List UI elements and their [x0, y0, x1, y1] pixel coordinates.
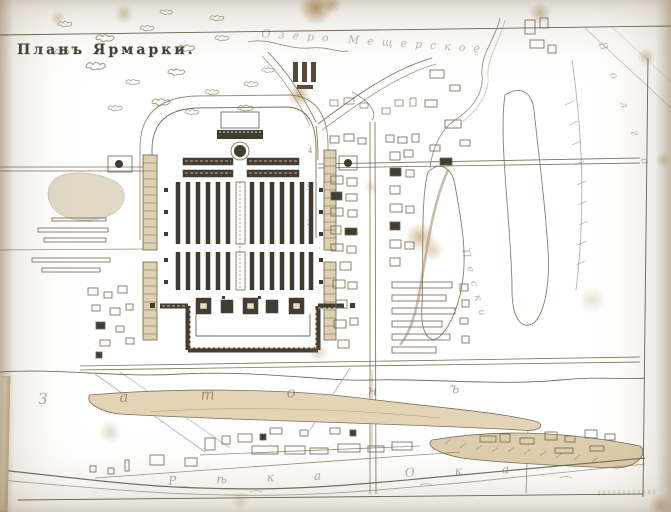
arcade-strips	[143, 150, 336, 340]
map-engraving	[0, 0, 671, 512]
vegetation-tufts	[55, 10, 275, 115]
backwater-and-river	[0, 371, 645, 495]
map-sheet: Планъ Ярмарки. Озеро Мещерское Затонъ Рѣ…	[0, 0, 671, 512]
fair-ensemble	[140, 95, 355, 350]
west-district	[32, 156, 134, 358]
trading-rows	[178, 182, 311, 290]
engraver-signature	[598, 489, 656, 495]
ornate-rows	[183, 158, 299, 177]
triple-building	[293, 62, 316, 89]
central-gallery	[236, 182, 245, 290]
river-islands	[400, 60, 588, 345]
cathedral	[217, 112, 263, 160]
plot-number: 2	[307, 219, 311, 227]
plot-number: 3	[306, 184, 310, 192]
plot-number: 4	[308, 147, 312, 155]
streets	[0, 52, 640, 494]
stream-lines	[248, 18, 505, 168]
pavilion-row	[196, 298, 304, 314]
